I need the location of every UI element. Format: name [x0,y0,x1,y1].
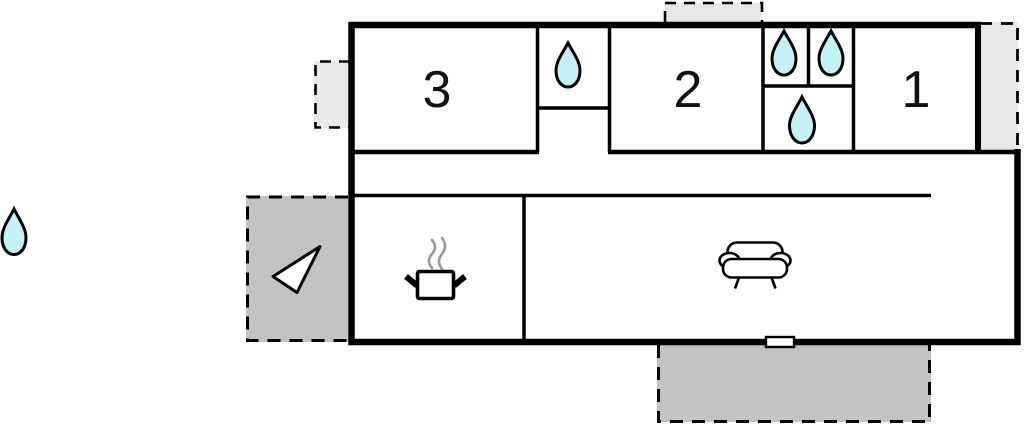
bedroom-1-label: 1 [902,61,931,119]
floor-plan-page: 3 2 1 [0,0,1024,427]
water-drop-icon-outside [2,209,26,255]
sofa-icon [720,243,791,289]
right-terrace [980,22,1018,151]
bedroom-2-label: 2 [674,61,703,119]
sofa-leg-right [772,278,776,289]
steam-icon [429,238,445,269]
kitchen-icons [406,238,465,299]
top-terrace [665,3,762,22]
sofa-leg-left [735,278,739,289]
water-drop-icon-bathroom2-big [790,97,815,143]
left-small-terrace [314,61,350,128]
bedroom-3-label: 3 [423,61,452,119]
cooking-pot-icon [406,272,465,299]
bottom-terrace [657,345,931,422]
steam-line-left [429,240,435,268]
right-terrace-fill [980,22,1018,151]
left-small-terrace-fill [314,61,350,128]
window-marker [766,337,794,347]
top-terrace-fill [665,3,762,22]
water-drop-icon-bathroom1 [556,43,580,87]
pot-handle-right [454,277,465,286]
steam-line-right [439,238,445,269]
floor-plan-canvas: 3 2 1 [0,0,1024,427]
water-drop-icon-bathroom2-left [772,31,796,75]
pot-body [418,272,454,299]
bottom-terrace-fill [657,345,931,422]
pot-handle-left [406,277,417,286]
entrance-terrace [246,196,348,342]
sofa-seat [723,259,787,278]
water-drop-icon-bathroom2-right [819,31,843,75]
